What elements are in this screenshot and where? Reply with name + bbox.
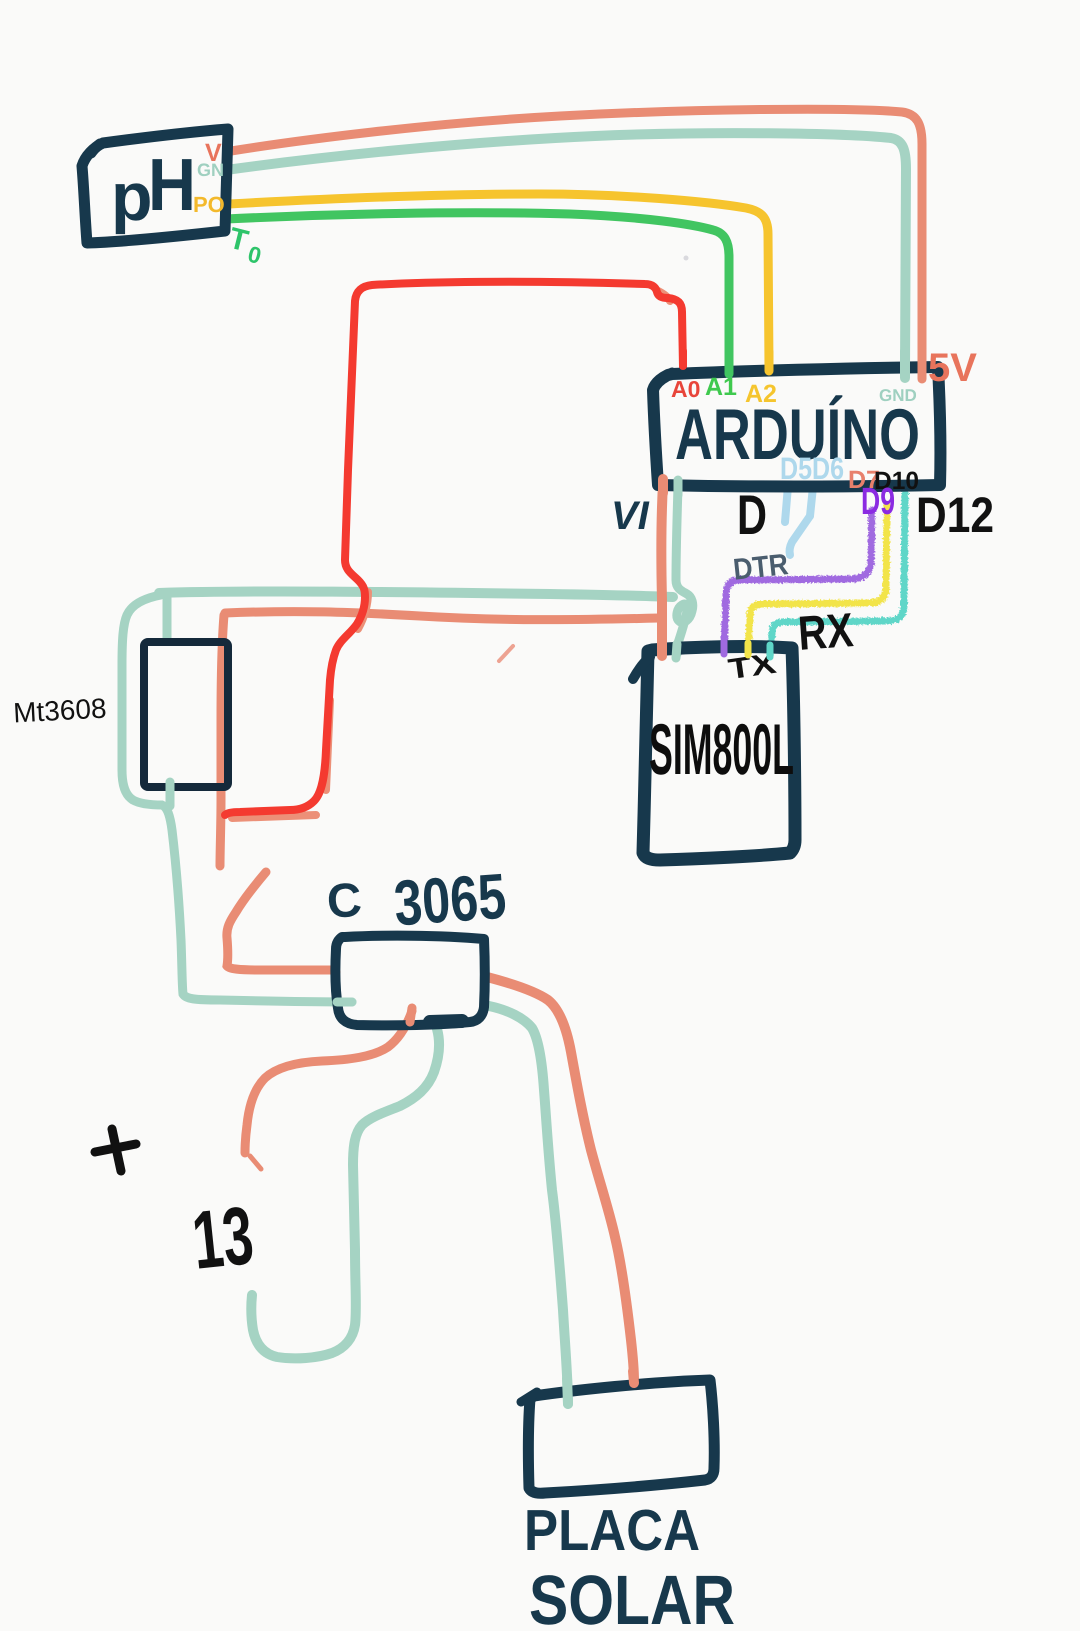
svg-text:3065: 3065 (392, 860, 509, 940)
svg-text:D: D (737, 483, 767, 546)
svg-text:Mt3608: Mt3608 (12, 693, 107, 729)
svg-text:SIM800L: SIM800L (649, 710, 794, 790)
svg-text:PLACA: PLACA (524, 1498, 700, 1563)
svg-text:D12: D12 (916, 487, 994, 543)
svg-text:GN: GN (197, 160, 224, 180)
svg-text:RX: RX (796, 604, 855, 661)
svg-text:C: C (325, 874, 363, 929)
svg-text:PO: PO (193, 192, 225, 217)
svg-text:5V: 5V (928, 346, 977, 390)
svg-text:13: 13 (188, 1190, 257, 1287)
svg-text:DTR: DTR (732, 548, 790, 587)
svg-text:H: H (148, 143, 196, 226)
svg-text:D9: D9 (861, 481, 895, 523)
svg-text:D5D6: D5D6 (780, 451, 844, 486)
svg-text:SOLAR: SOLAR (529, 1561, 735, 1631)
svg-text:p: p (111, 159, 153, 235)
svg-text:VI: VI (611, 494, 650, 538)
